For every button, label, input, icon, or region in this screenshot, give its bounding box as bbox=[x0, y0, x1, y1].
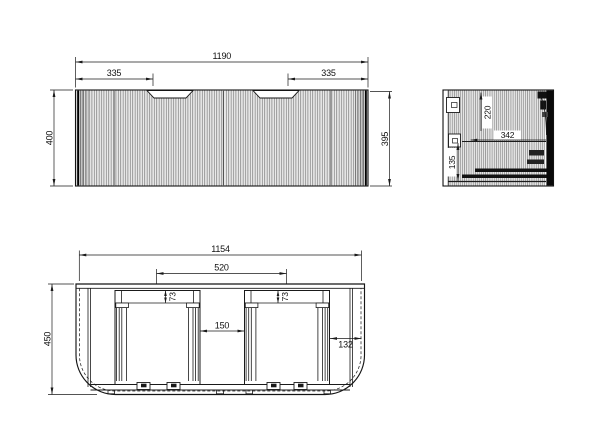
dim-label-395: 395 bbox=[380, 132, 390, 147]
wall-bracket-upper bbox=[447, 98, 460, 113]
dim-label-135: 135 bbox=[447, 155, 457, 169]
dim-front-handle-offset-left: 335 bbox=[76, 68, 154, 86]
dim-label-342: 342 bbox=[501, 130, 515, 140]
dim-label-73-right: 73 bbox=[280, 292, 290, 302]
handle-notch-left bbox=[147, 91, 193, 98]
dim-label-150: 150 bbox=[215, 321, 230, 331]
front-view: 1190 335 335 400 bbox=[45, 51, 392, 186]
dim-label-1154: 1154 bbox=[211, 244, 230, 254]
dim-label-73-left: 73 bbox=[168, 292, 178, 302]
dim-plan-inner-span: 520 bbox=[157, 263, 287, 284]
dim-label-335-right: 335 bbox=[321, 68, 336, 78]
dim-label-520: 520 bbox=[214, 263, 229, 273]
handle-notch-right bbox=[253, 91, 299, 98]
dim-label-220: 220 bbox=[483, 105, 493, 119]
dim-label-450: 450 bbox=[43, 332, 53, 347]
dim-label-1190: 1190 bbox=[213, 51, 232, 61]
dim-front-height-right: 395 bbox=[370, 92, 392, 187]
side-view: 220 342 135 bbox=[443, 90, 554, 186]
drawing-sheet: 1190 335 335 400 bbox=[0, 0, 600, 437]
wall-bracket-lower bbox=[449, 134, 461, 147]
dim-label-400: 400 bbox=[45, 131, 55, 146]
plan-view: 1154 520 450 73 bbox=[43, 244, 365, 395]
dim-label-335-left: 335 bbox=[107, 68, 122, 78]
dim-front-handle-offset-right: 335 bbox=[288, 68, 368, 86]
side-front-panel-edge bbox=[547, 91, 554, 186]
dim-label-132: 132 bbox=[338, 340, 353, 350]
dim-front-height-left: 400 bbox=[45, 90, 73, 186]
front-panel bbox=[76, 90, 369, 186]
technical-drawing-canvas: 1190 335 335 400 bbox=[0, 0, 600, 437]
